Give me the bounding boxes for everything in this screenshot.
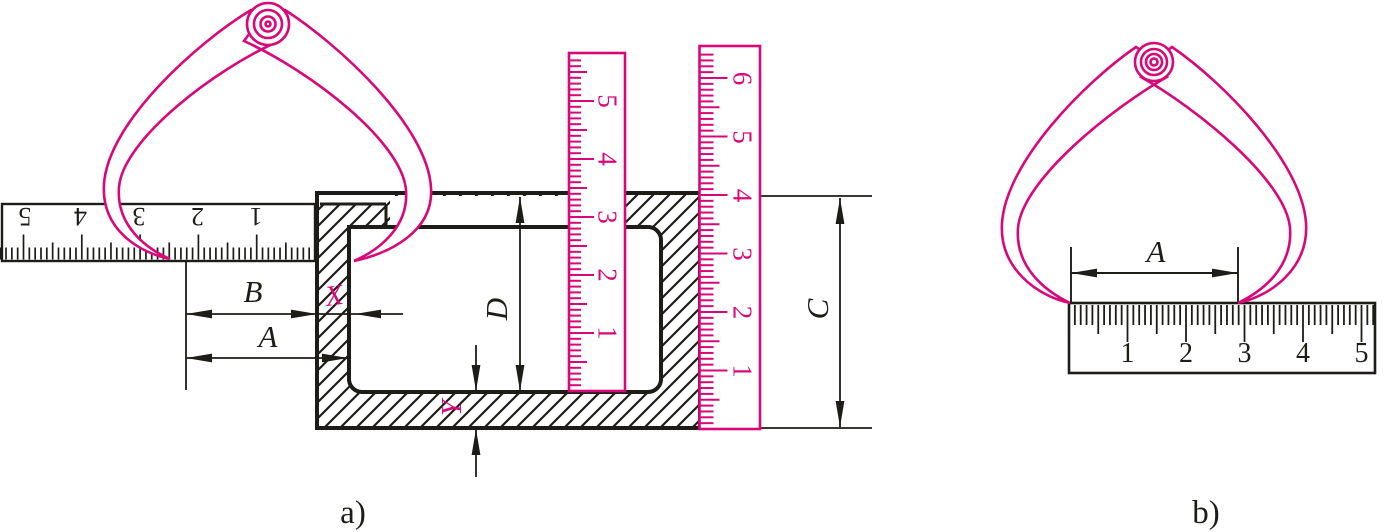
svg-text:4: 4 [1296,338,1310,369]
svg-text:3: 3 [593,210,623,224]
svg-text:3: 3 [728,247,758,261]
svg-text:4: 4 [593,152,623,166]
svg-text:5: 5 [1355,338,1369,369]
dim-label-A: A [257,319,279,354]
svg-text:6: 6 [728,72,758,86]
panel-b-label: b) [1192,495,1220,531]
svg-text:1: 1 [593,326,623,340]
svg-text:2: 2 [191,202,204,231]
caliper-pivot [247,3,289,45]
steel-ruler-b: 12345 [1069,303,1375,373]
dim-label-C: C [800,298,835,319]
depth-ruler: 12345 [569,53,625,391]
svg-text:3: 3 [1238,338,1252,369]
svg-text:2: 2 [593,268,623,282]
measurement-figure: B A X Y D C 54321 [0,0,1389,532]
panel-b: A 12345 b) [1002,43,1375,531]
svg-text:2: 2 [1179,338,1193,369]
svg-text:1: 1 [728,364,758,378]
rim-strip [319,195,386,203]
svg-text:4: 4 [728,189,758,203]
svg-text:3: 3 [133,202,146,231]
svg-text:5: 5 [728,130,758,144]
panel-a-label: a) [340,495,366,531]
svg-text:1: 1 [250,202,263,231]
dim-label-A-b: A [1145,234,1167,269]
dim-label-B: B [244,274,263,309]
svg-text:1: 1 [1121,338,1135,369]
svg-text:4: 4 [74,202,87,231]
svg-text:2: 2 [728,306,758,320]
figure-canvas: B A X Y D C 54321 [0,0,1389,532]
svg-text:5: 5 [19,202,32,231]
height-ruler: 123456 [700,46,761,429]
svg-text:5: 5 [593,94,623,108]
caliper-pivot-b [1135,43,1173,81]
dim-label-D: D [479,298,514,321]
panel-a: B A X Y D C 54321 [0,3,872,531]
